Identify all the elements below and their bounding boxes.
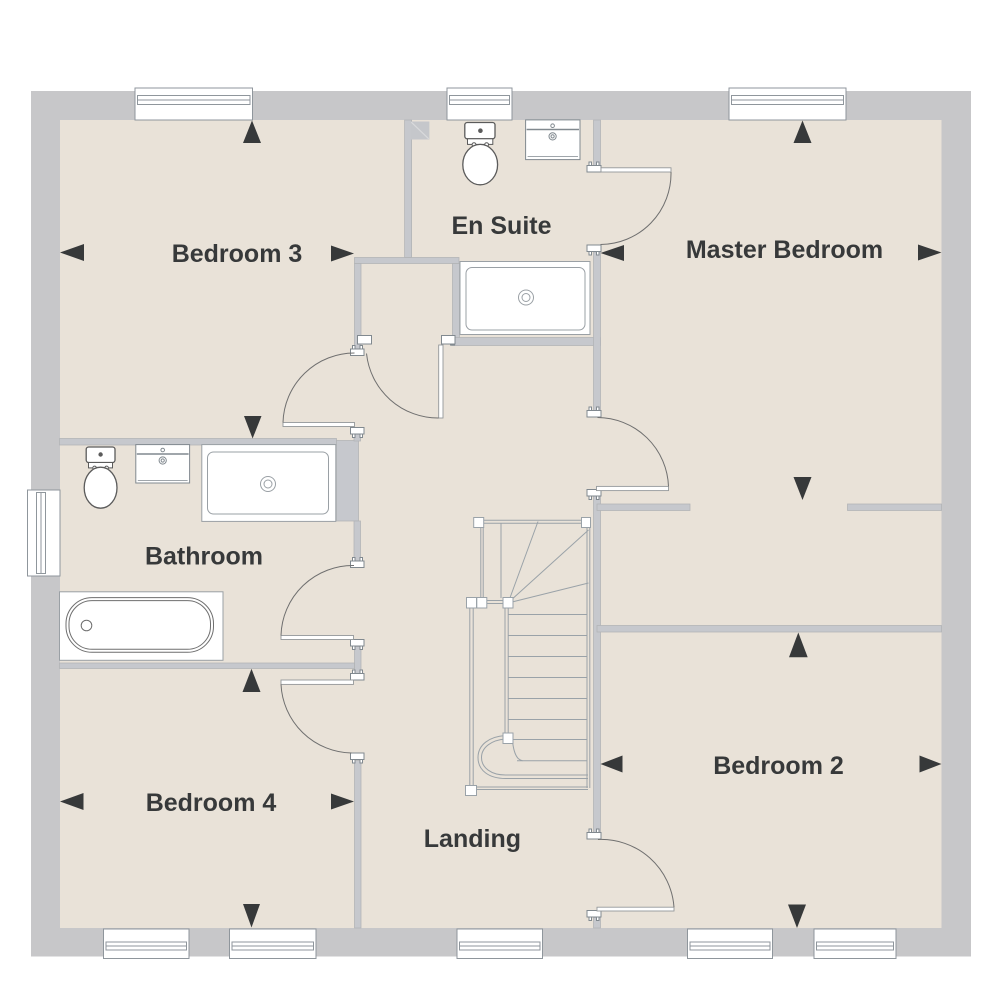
svg-text:Landing: Landing — [424, 825, 521, 853]
svg-text:Bedroom 3: Bedroom 3 — [172, 240, 303, 268]
svg-text:Bathroom: Bathroom — [145, 543, 263, 571]
svg-text:Bedroom 2: Bedroom 2 — [713, 752, 844, 780]
svg-text:Master Bedroom: Master Bedroom — [686, 236, 883, 264]
svg-text:Bedroom 4: Bedroom 4 — [146, 789, 277, 817]
svg-text:En Suite: En Suite — [451, 212, 551, 240]
